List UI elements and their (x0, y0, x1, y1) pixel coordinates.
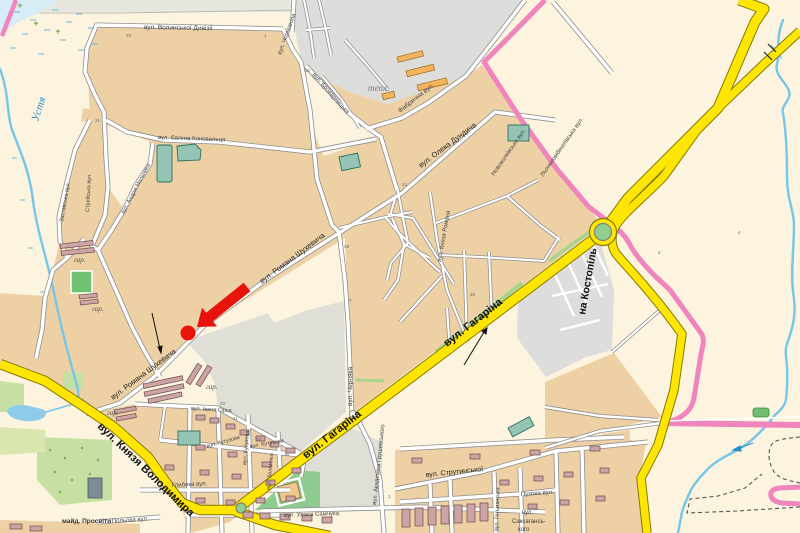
svg-text:гар.: гар. (92, 305, 104, 313)
svg-text:18: 18 (256, 437, 262, 442)
svg-text:21: 21 (233, 416, 239, 421)
svg-text:Саксагансь-: Саксагансь- (512, 519, 546, 525)
svg-text:гар.: гар. (74, 256, 86, 264)
svg-text:16: 16 (284, 452, 290, 457)
svg-text:тепл.: тепл. (368, 83, 389, 93)
svg-text:кого: кого (518, 527, 530, 533)
svg-text:майд. Просвіти: майд. Просвіти (62, 517, 111, 525)
svg-text:23: 23 (126, 33, 132, 38)
svg-text:48: 48 (470, 292, 476, 297)
svg-text:вул. Волинської Дивізії: вул. Волинської Дивізії (144, 23, 213, 32)
svg-text:вул. Черняка: вул. Черняка (347, 367, 354, 406)
svg-text:21: 21 (95, 118, 101, 123)
svg-text:38: 38 (344, 244, 350, 249)
svg-text:36: 36 (305, 68, 311, 73)
svg-text:14: 14 (402, 182, 408, 187)
svg-text:23: 23 (220, 401, 226, 406)
svg-text:гар.: гар. (206, 383, 218, 391)
svg-text:вул.: вул. (522, 510, 533, 516)
svg-text:гар.: гар. (107, 409, 119, 417)
